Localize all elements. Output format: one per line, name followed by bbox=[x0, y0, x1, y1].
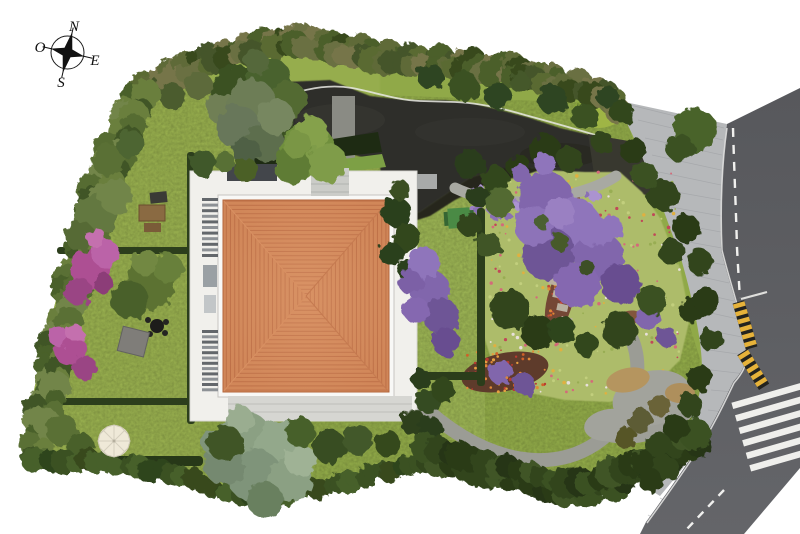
svg-text:S: S bbox=[57, 75, 65, 91]
svg-text:E: E bbox=[89, 53, 99, 69]
svg-text:O: O bbox=[35, 40, 46, 56]
svg-text:N: N bbox=[68, 19, 80, 35]
